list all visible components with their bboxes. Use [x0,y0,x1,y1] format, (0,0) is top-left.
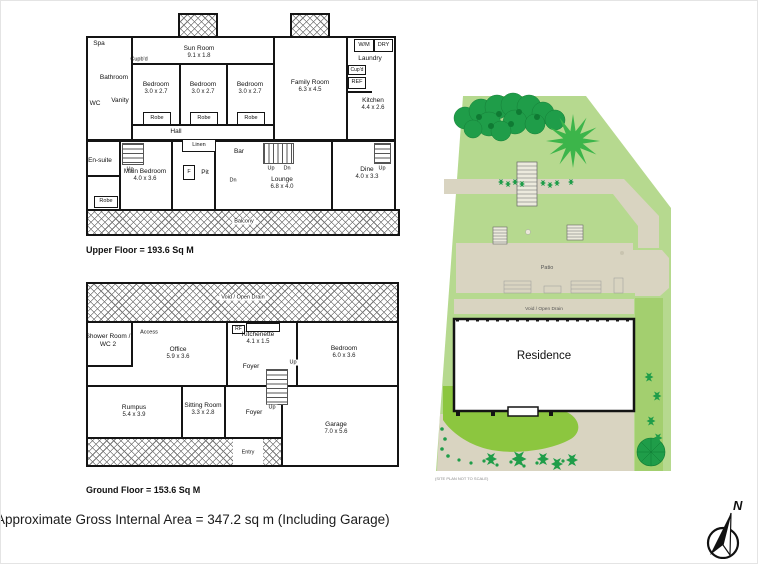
room-label-access: Access [140,330,158,337]
ref-label: REF [352,80,363,86]
ground-floor-caption: Ground Floor = 153.6 Sq M [86,485,200,495]
wall [226,323,228,387]
f-label: F [187,170,190,176]
balcony-hatch-top-left [178,13,218,38]
room-label-balcony: Balcony [232,219,256,226]
wall [224,387,226,439]
stairs-foyer [266,369,288,405]
wall [226,63,228,126]
room-label-foyer-upper: Foyer [243,363,260,371]
room-label-shower: Shower Room /WC 2 [86,333,131,349]
room-label-ensuite: En-suite [88,157,112,165]
site-void-label: Void / Open Drain [525,306,563,312]
wall [86,139,396,142]
stairs-central [263,143,294,164]
residence [454,319,634,416]
room-label-hall: Hall [170,128,181,136]
patio-label: Patio [541,265,554,271]
dry-label: DRY [378,43,390,49]
room-label-spa: Spa [93,40,105,48]
room-label-bathroom: Bathroom [100,74,128,82]
room-label-cupbd: Cupb'd [130,57,147,64]
room-label-bedroom: Bedroom6.0 x 3.6 [331,345,357,361]
cupboard: Cup'd [348,65,366,75]
robe-label: Robe [150,116,163,122]
robe-label: Robe [99,199,112,205]
room-label-family: Family Room6.3 x 4.5 [291,79,329,95]
wall [171,141,173,209]
north-label: N [733,498,743,513]
wall [296,323,298,387]
washing-machine: W/M [354,39,374,52]
room-label-bar: Bar [234,148,244,156]
stair-label-up: Up [266,405,277,412]
room-label-kitchen: Kitchen4.4 x 2.6 [361,97,384,113]
void-open-drain-label: Void / Open Drain [219,295,266,302]
linen-label: Linen [192,143,205,149]
robe-label: Robe [197,116,210,122]
cupd-label: Cup'd [351,68,364,73]
fridge: REF [348,77,366,89]
residence-label: Residence [517,350,571,362]
void-hatch [86,282,399,323]
room-label-bedroom2: Bedroom3.0 x 2.7 [190,81,216,97]
room-label-pit: Pit [201,169,209,177]
stair-label-dn: Dn [229,178,236,185]
room-label-office: Office5.9 x 3.6 [166,346,189,362]
ground-floor-plan: RF Void / Open Drain Shower Room /WC 2 A… [86,279,402,475]
robe-closet-main: Robe [94,196,118,208]
linen-closet: Linen [182,139,216,152]
wall [348,91,372,93]
room-label-bedroom1: Bedroom3.0 x 2.7 [143,81,169,97]
upper-floor-caption: Upper Floor = 193.6 Sq M [86,245,194,255]
wall [179,63,181,126]
stair-label-up: Up [287,360,298,367]
stair-label-up: Up [378,166,385,173]
room-label-kitchenette: Kitchenette4.1 x 1.5 [242,331,275,347]
wall [131,63,275,65]
stair-label-up: Up [126,167,133,174]
site-note: (SITE PLAN NOT TO SCALE) [435,476,489,481]
wall [86,385,399,387]
compass: N [701,497,753,559]
wall [86,365,133,367]
wall [131,323,133,367]
room-label-foyer-lower: Foyer [246,409,263,417]
robe-closet: Robe [190,112,218,125]
wall [119,141,121,209]
stair-label-up: Up [267,166,274,173]
wall [181,387,183,439]
room-label-garage: Garage7.0 x 5.6 [324,421,347,437]
stair-label-dn: Dn [283,166,290,173]
site-plan: Patio Void / Open Drain Residence (SITE … [429,84,719,484]
wm-label: W/M [358,43,369,49]
room-label-laundry: Laundry [358,55,382,63]
room-label-bedroom3: Bedroom3.0 x 2.7 [237,81,263,97]
room-label-sunroom: Sun Room9.1 x 1.8 [184,45,215,61]
floorplan-page: Robe Robe Robe Linen W/M DRY Cup'd REF R… [0,0,758,564]
upper-floor-plan: Robe Robe Robe Linen W/M DRY Cup'd REF R… [86,13,402,239]
stairs-left [122,143,144,165]
robe-closet: Robe [143,112,171,125]
balcony-hatch-top-right [290,13,330,38]
room-label-wc: WC [90,100,101,108]
wall [331,141,333,209]
room-label-entry: Entry [242,450,255,457]
room-label-dine: Dine4.0 x 3.3 [355,166,378,182]
robe-label: Robe [244,116,257,122]
stairs-right [374,143,391,164]
wall [86,175,119,177]
room-label-vanity: Vanity [111,97,129,105]
room-label-rumpus: Rumpus5.4 x 3.9 [122,404,146,420]
room-label-lounge: Lounge6.8 x 4.0 [270,176,293,192]
dryer: DRY [374,39,393,52]
gross-area-note: Approximate Gross Internal Area = 347.2 … [0,512,390,527]
robe-closet: Robe [237,112,265,125]
fireplace-box: F [183,165,195,180]
room-label-sitting: Sitting Room3.3 x 2.8 [184,402,221,418]
